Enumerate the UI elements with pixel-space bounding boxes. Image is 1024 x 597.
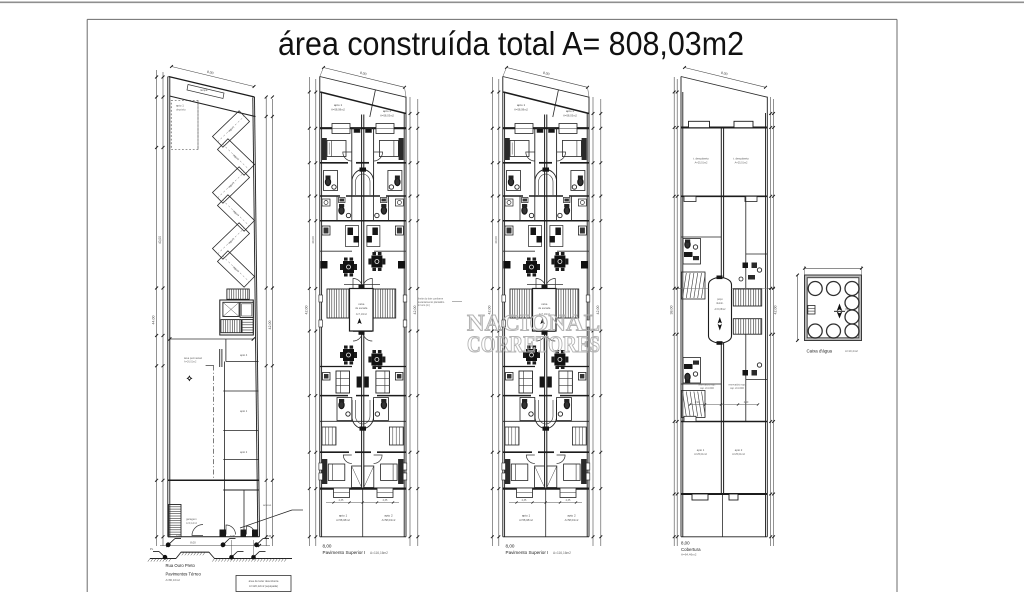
svg-text:A=58,08m2: A=58,08m2 bbox=[514, 107, 528, 111]
svg-text:8,00: 8,00 bbox=[506, 544, 515, 549]
svg-text:apto 2: apto 2 bbox=[567, 514, 576, 518]
svg-text:A=58,03m2: A=58,03m2 bbox=[565, 518, 579, 522]
svg-text:0,45: 0,45 bbox=[266, 534, 272, 538]
svg-text:Cobertura: Cobertura bbox=[681, 547, 701, 552]
svg-text:caixa: caixa bbox=[358, 302, 365, 306]
svg-text:t. descoberto: t. descoberto bbox=[693, 157, 709, 161]
svg-text:A=25,01m2: A=25,01m2 bbox=[694, 453, 707, 456]
svg-text:A=7,10m2: A=7,10m2 bbox=[356, 313, 368, 316]
svg-text:cap. 2x1.000l: cap. 2x1.000l bbox=[730, 388, 744, 390]
svg-text:reservatório sup.: reservatório sup. bbox=[698, 384, 715, 387]
svg-text:apto 2: apto 2 bbox=[240, 450, 248, 454]
svg-text:área construída total A= 808,0: área construída total A= 808,03m2 bbox=[278, 26, 744, 63]
svg-text:t. descoberto: t. descoberto bbox=[733, 157, 749, 161]
svg-text:A=58,08m2: A=58,08m2 bbox=[331, 107, 345, 111]
svg-text:de escada: de escada bbox=[538, 306, 551, 310]
svg-text:Pavimento Superior I: Pavimento Superior I bbox=[506, 550, 549, 555]
svg-text:apto 1: apto 1 bbox=[517, 103, 526, 107]
svg-text:A=25,01m2: A=25,01m2 bbox=[732, 453, 745, 456]
svg-text:apto 1: apto 1 bbox=[334, 103, 343, 107]
svg-text:Pavimentos Térreo: Pavimentos Térreo bbox=[166, 572, 202, 577]
svg-text:42,00: 42,00 bbox=[774, 306, 778, 315]
svg-text:apto 2: apto 2 bbox=[383, 109, 392, 113]
svg-text:0,30: 0,30 bbox=[230, 534, 236, 538]
svg-text:área de lazer descoberta: área de lazer descoberta bbox=[249, 579, 279, 583]
svg-text:A=9,12m2: A=9,12m2 bbox=[186, 522, 198, 525]
svg-text:de escada: de escada bbox=[355, 306, 368, 310]
svg-text:42,00: 42,00 bbox=[268, 321, 272, 330]
svg-text:8,00: 8,00 bbox=[681, 541, 690, 546]
svg-text:38,00: 38,00 bbox=[669, 306, 673, 315]
svg-text:Pavimento Superior I: Pavimento Superior I bbox=[323, 550, 366, 555]
svg-text:apto 1: apto 1 bbox=[240, 409, 248, 413]
svg-text:apto 1: apto 1 bbox=[176, 104, 184, 108]
svg-text:A=58,08m2: A=58,08m2 bbox=[336, 518, 350, 522]
svg-text:A=116,16m2: A=116,16m2 bbox=[370, 551, 388, 555]
svg-text:área permeável: área permeável bbox=[184, 356, 202, 360]
svg-text:reservatório sup.: reservatório sup. bbox=[728, 384, 745, 387]
svg-text:A=58,03m2: A=58,03m2 bbox=[563, 113, 577, 117]
svg-text:2,35: 2,35 bbox=[383, 499, 388, 502]
svg-text:apto 2: apto 2 bbox=[735, 448, 743, 452]
svg-text:ilumin.: ilumin. bbox=[716, 302, 724, 305]
svg-text:40,00: 40,00 bbox=[494, 236, 498, 244]
svg-text:A=26,01m2: A=26,01m2 bbox=[184, 361, 197, 364]
svg-text:CORRETORES: CORRETORES bbox=[467, 332, 600, 358]
svg-text:A=10,4m2: A=10,4m2 bbox=[845, 349, 858, 353]
svg-text:8,00: 8,00 bbox=[190, 541, 196, 545]
svg-text:A=120,12m2 (equipada): A=120,12m2 (equipada) bbox=[249, 584, 278, 588]
svg-text:cap. 2x1.000l: cap. 2x1.000l bbox=[700, 388, 714, 390]
svg-text:caixa: caixa bbox=[541, 302, 548, 306]
svg-text:8,00: 8,00 bbox=[323, 544, 332, 549]
svg-text:PL: PL bbox=[150, 547, 154, 551]
svg-text:A=58,08m2: A=58,08m2 bbox=[519, 518, 533, 522]
svg-text:2,35: 2,35 bbox=[522, 499, 527, 502]
svg-text:A=58,03m2: A=58,03m2 bbox=[380, 113, 394, 117]
svg-text:garagem: garagem bbox=[186, 517, 197, 521]
svg-text:apto 2: apto 2 bbox=[384, 514, 393, 518]
svg-text:2,35: 2,35 bbox=[566, 499, 571, 502]
svg-text:A=25,01m2: A=25,01m2 bbox=[695, 162, 708, 165]
svg-text:44,00: 44,00 bbox=[152, 316, 156, 325]
svg-text:2,35: 2,35 bbox=[339, 499, 344, 502]
svg-text:Rua Ouro Preto: Rua Ouro Preto bbox=[166, 563, 196, 568]
svg-text:A=116,16m2: A=116,16m2 bbox=[553, 551, 571, 555]
svg-text:0,00: 0,00 bbox=[176, 534, 182, 538]
svg-text:acesso: acesso bbox=[263, 504, 272, 507]
svg-text:Caixa d'água: Caixa d'água bbox=[807, 349, 833, 354]
svg-text:A=6,08m2: A=6,08m2 bbox=[715, 308, 727, 311]
svg-text:apto 2: apto 2 bbox=[566, 109, 575, 113]
svg-text:42,00: 42,00 bbox=[413, 306, 417, 315]
svg-text:2,90: 2,90 bbox=[695, 402, 700, 404]
svg-text:in loco (m): in loco (m) bbox=[418, 304, 430, 307]
svg-text:apto 1: apto 1 bbox=[339, 514, 348, 518]
svg-text:42,00: 42,00 bbox=[305, 306, 309, 315]
svg-text:40,00: 40,00 bbox=[311, 236, 315, 244]
svg-text:rampa: rampa bbox=[200, 88, 208, 92]
svg-text:A=58,03m2: A=58,03m2 bbox=[382, 518, 396, 522]
svg-text:2,90: 2,90 bbox=[744, 402, 749, 404]
svg-text:apto 1: apto 1 bbox=[522, 514, 531, 518]
svg-text:40,00: 40,00 bbox=[158, 236, 162, 244]
svg-text:apto 1: apto 1 bbox=[697, 448, 705, 452]
svg-text:poço: poço bbox=[717, 298, 723, 301]
svg-text:depósito: depósito bbox=[176, 108, 186, 112]
svg-text:apto 4: apto 4 bbox=[240, 353, 248, 357]
svg-text:A=25,01m2: A=25,01m2 bbox=[735, 162, 748, 165]
svg-text:A=64,46m2: A=64,46m2 bbox=[681, 553, 697, 557]
svg-text:A=80,10m2: A=80,10m2 bbox=[166, 578, 181, 582]
